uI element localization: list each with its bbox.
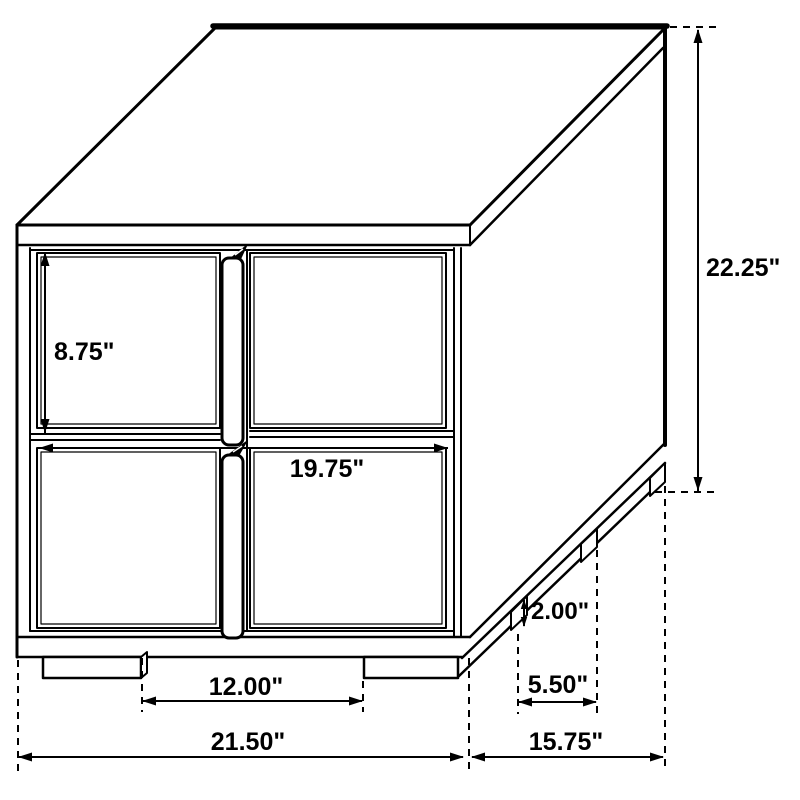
arrowhead xyxy=(450,753,464,762)
arrowhead xyxy=(521,617,527,627)
drawer-panel-top-right xyxy=(250,253,446,428)
drawer-handle-bottom xyxy=(222,455,243,638)
dim-label-top-drawer-height: 8.75" xyxy=(54,338,115,366)
front-leg-left xyxy=(43,657,141,678)
dim-label-front-leg-gap: 12.00" xyxy=(209,673,283,701)
dim-label-overall-height: 22.25" xyxy=(706,254,780,282)
arrowhead xyxy=(694,29,703,43)
dim-label-drawer-front-width: 19.75" xyxy=(290,455,364,483)
dim-label-side-leg-gap: 5.50" xyxy=(528,671,589,699)
arrowhead xyxy=(471,753,485,762)
dim-label-base-height: 2.00" xyxy=(531,598,589,625)
dim-overall-height: 22.25" xyxy=(655,27,780,492)
dim-label-overall-depth: 15.75" xyxy=(529,728,603,756)
arrowhead xyxy=(349,697,363,706)
arrowhead xyxy=(694,477,703,491)
front-leg-right xyxy=(364,657,458,678)
arrowhead xyxy=(18,753,32,762)
dim-base-height: 2.00" xyxy=(521,598,589,627)
arrowhead xyxy=(142,697,156,706)
dim-label-overall-width: 21.50" xyxy=(211,728,285,756)
drawer-panel-bottom-left xyxy=(37,448,220,628)
drawer-handle-top xyxy=(222,258,243,445)
dim-front-leg-gap: 12.00" xyxy=(142,658,363,712)
side-leg-middle xyxy=(581,529,597,562)
nightstand-dimension-diagram: 8.75" 19.75" 22.25" 2.00" xyxy=(0,0,800,800)
dimension-diagram-page: 8.75" 19.75" 22.25" 2.00" xyxy=(0,0,800,800)
arrowhead xyxy=(650,753,664,762)
